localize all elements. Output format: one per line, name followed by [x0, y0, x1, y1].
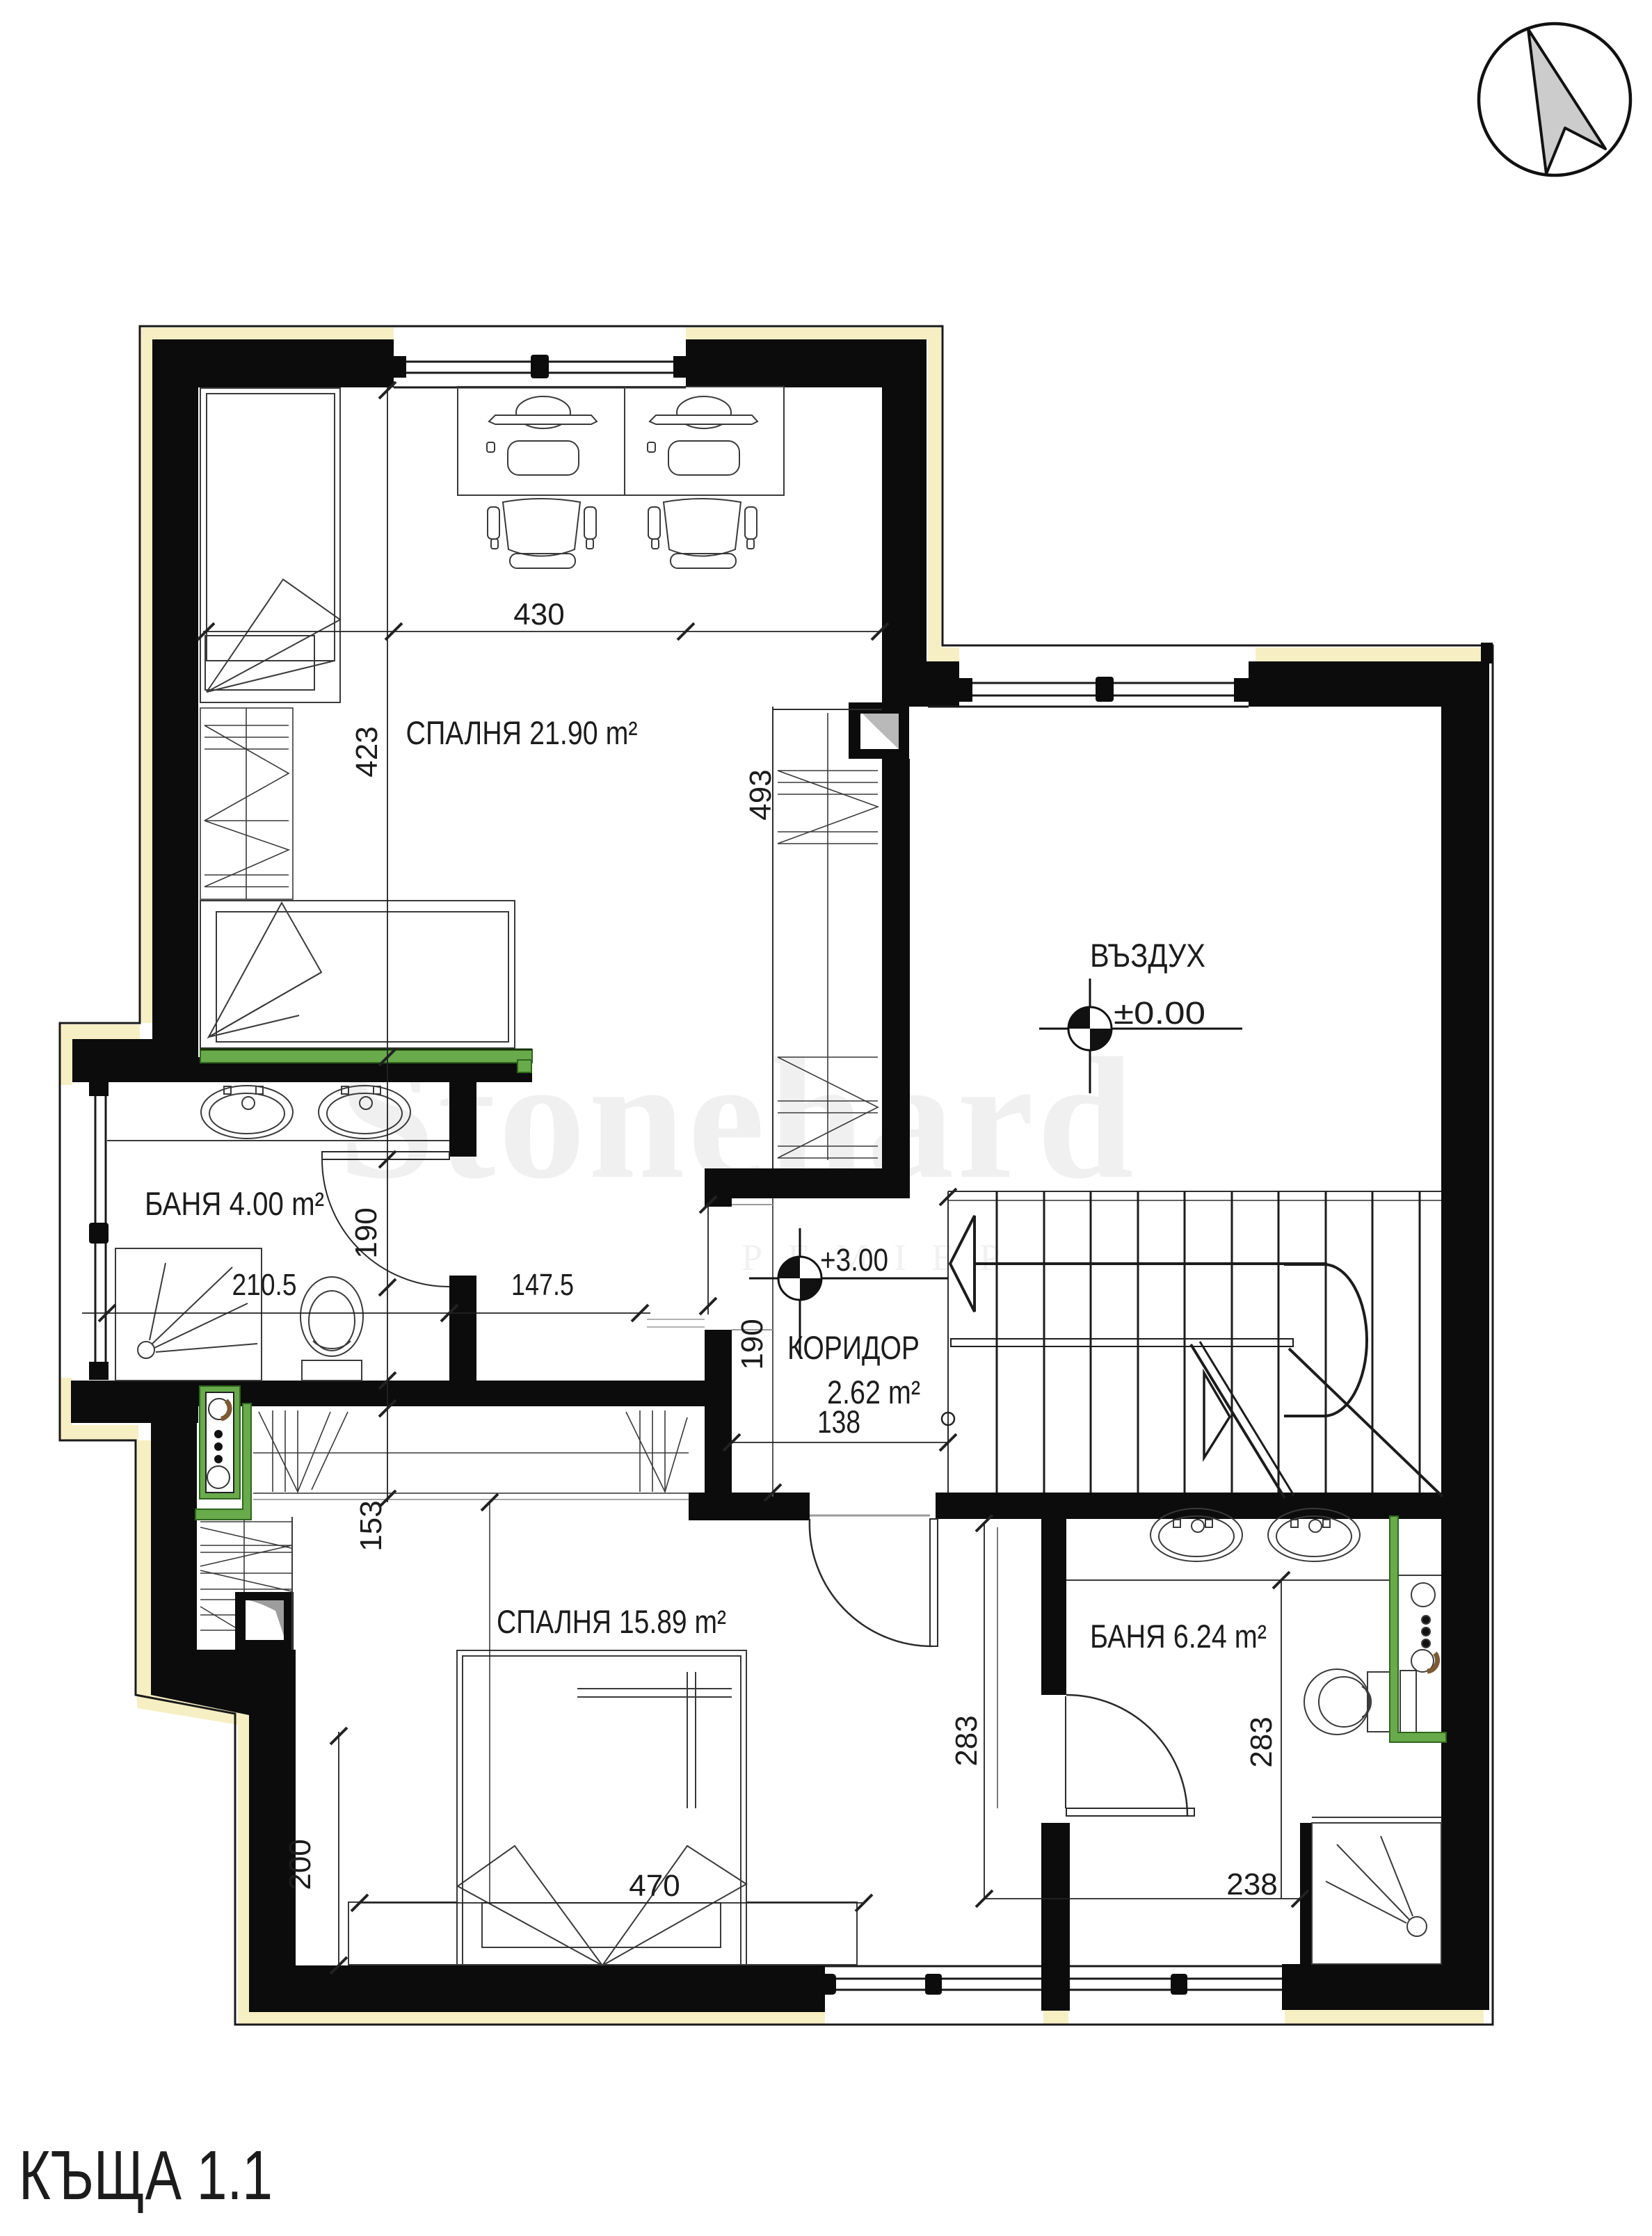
svg-text:423: 423: [350, 726, 384, 777]
svg-text:430: 430: [513, 597, 564, 632]
svg-text:210.5: 210.5: [232, 1268, 297, 1302]
svg-text:КОРИДОР: КОРИДОР: [787, 1329, 920, 1366]
svg-text:238: 238: [1226, 1867, 1277, 1901]
svg-text:БАНЯ 4.00 m²: БАНЯ 4.00 m²: [145, 1185, 324, 1222]
svg-text:153: 153: [354, 1500, 388, 1551]
svg-text:+3.00: +3.00: [820, 1242, 888, 1278]
svg-text:190: 190: [735, 1319, 769, 1369]
svg-text:±0.00: ±0.00: [1114, 995, 1205, 1031]
svg-text:ВЪЗДУХ: ВЪЗДУХ: [1090, 937, 1205, 974]
svg-text:283: 283: [1244, 1716, 1278, 1767]
svg-text:СПАЛНЯ 21.90 m²: СПАЛНЯ 21.90 m²: [406, 714, 638, 751]
svg-text:200: 200: [283, 1839, 317, 1890]
svg-text:БАНЯ 6.24 m²: БАНЯ 6.24 m²: [1090, 1618, 1267, 1655]
svg-text:470: 470: [629, 1869, 680, 1903]
svg-text:283: 283: [949, 1715, 984, 1766]
svg-text:КЪЩА 1.1: КЪЩА 1.1: [19, 2137, 273, 2214]
svg-text:147.5: 147.5: [511, 1268, 574, 1302]
svg-text:СПАЛНЯ 15.89 m²: СПАЛНЯ 15.89 m²: [497, 1603, 726, 1640]
svg-text:138: 138: [817, 1404, 860, 1440]
svg-text:493: 493: [744, 769, 778, 820]
svg-text:190: 190: [349, 1207, 383, 1258]
